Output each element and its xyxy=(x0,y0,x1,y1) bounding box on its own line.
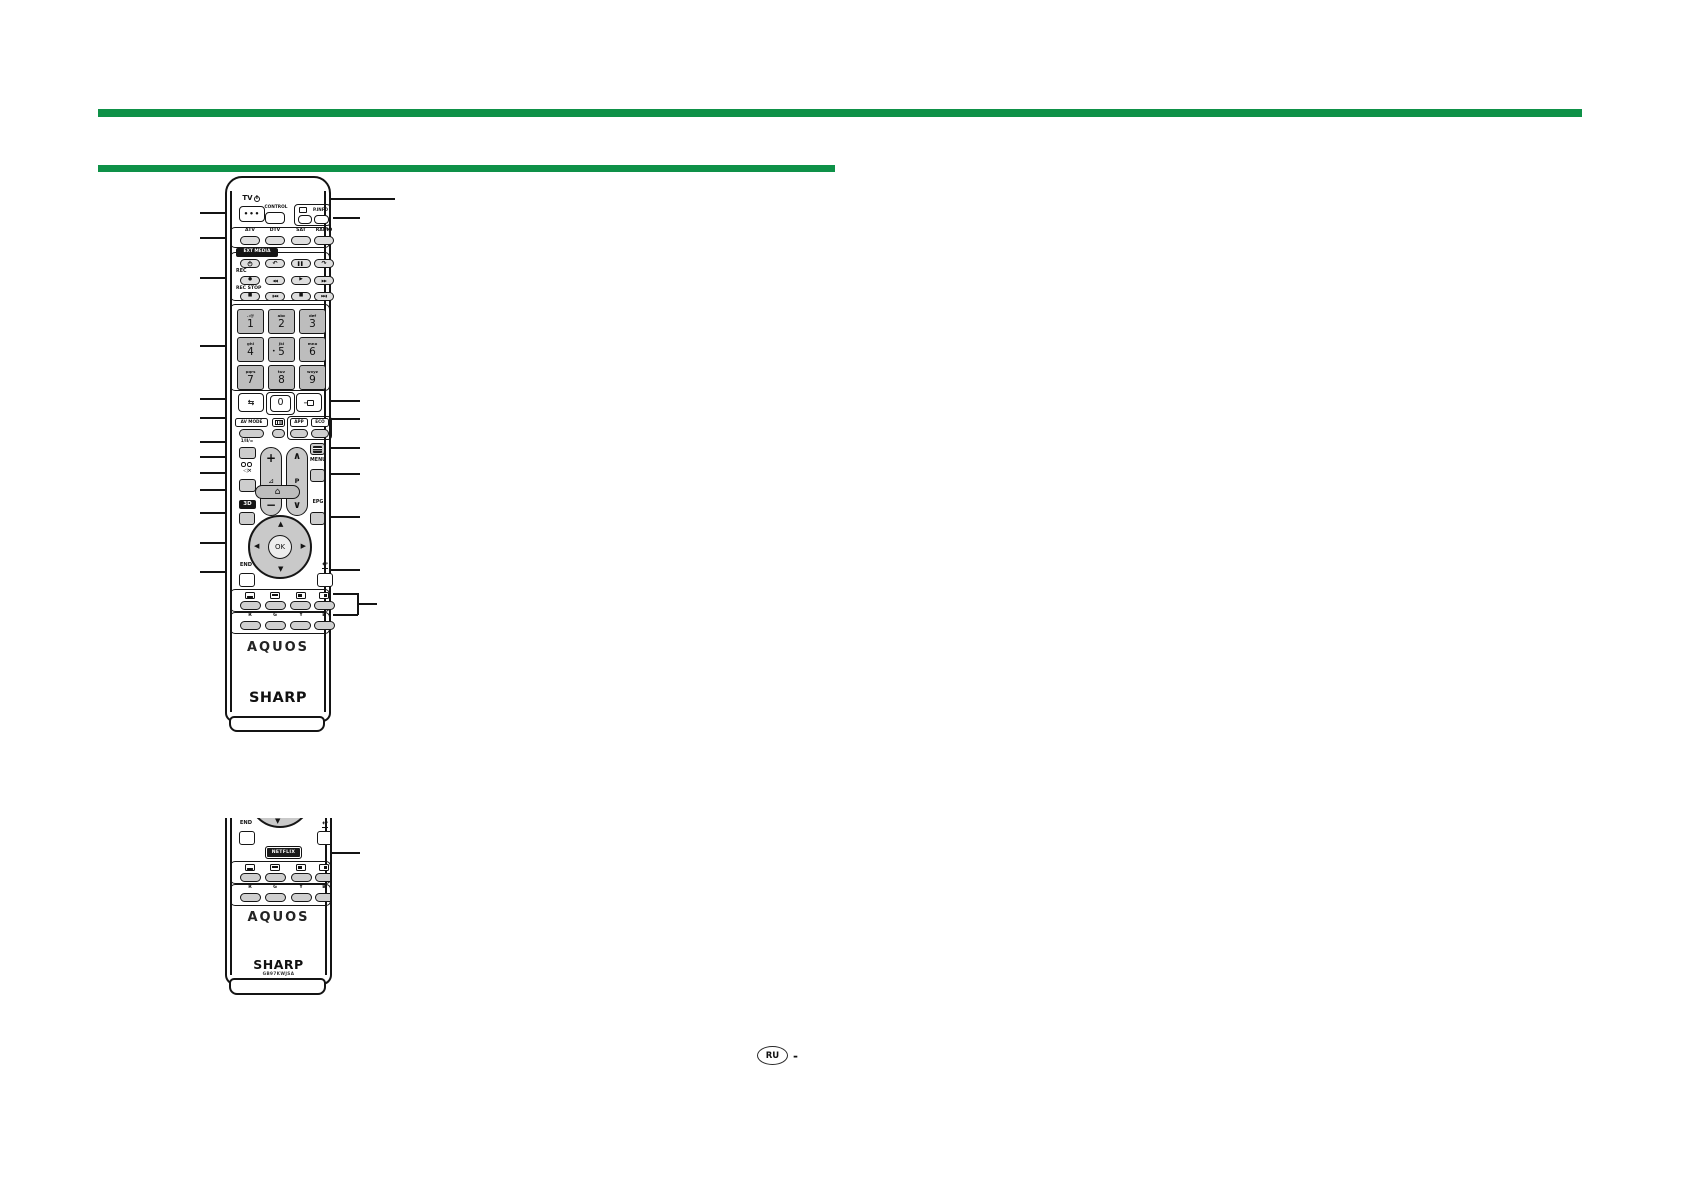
power-icon xyxy=(248,261,253,266)
remote-body: ▼ END ↩ NETFLIX R G Y B xyxy=(225,818,332,985)
remote-bottom-cap xyxy=(229,978,326,995)
epg-label: EPG xyxy=(309,501,327,506)
home-button: ⌂ xyxy=(255,485,300,499)
nav-down-icon: ▼ xyxy=(275,818,280,825)
dtv-button xyxy=(265,236,285,245)
teletext-subpage-icon xyxy=(319,864,329,871)
stop-icon: ■ xyxy=(248,294,252,299)
teletext-reveal-icon xyxy=(296,592,306,599)
netflix-label: NETFLIX xyxy=(272,850,296,855)
green-button xyxy=(265,621,286,630)
flashback-icon: ⇆ xyxy=(248,398,255,407)
volume-down: − xyxy=(266,499,276,511)
source-label-sat: SAT xyxy=(289,229,313,234)
media-pause-button: ▌▌ xyxy=(291,259,311,268)
callout-line xyxy=(357,603,377,605)
rec-label: REC xyxy=(236,270,256,275)
source-label-dtv: DTV xyxy=(263,229,287,234)
channel-label: P xyxy=(295,478,300,485)
navigation-pad: ▲ ▼ ◀ ▶ OK xyxy=(248,515,312,579)
pinfo-label: P.INFO xyxy=(311,208,330,212)
channel-rocker: ∧ P ∨ xyxy=(286,447,308,516)
section-underline xyxy=(98,165,835,172)
rewind-icon: ◀◀ xyxy=(273,279,278,283)
remote-body: TV ••• CONTROL P.INFO ATV DTV SAT RADIO xyxy=(225,176,331,722)
digit-key-0: 0 xyxy=(270,395,291,412)
atv-button xyxy=(240,236,260,245)
ok-label: OK xyxy=(275,544,285,551)
display-mode-button xyxy=(298,215,312,224)
input-box-icon xyxy=(307,400,314,406)
source-label-atv: ATV xyxy=(238,229,262,234)
red-key-label: R xyxy=(243,886,257,891)
digit-key-6: mno6 xyxy=(299,337,326,362)
key-digit: 3 xyxy=(309,319,316,330)
record-icon: ● xyxy=(248,278,252,283)
teletext-reveal-button xyxy=(291,873,312,882)
sat-button xyxy=(291,236,311,245)
volume-up: + xyxy=(266,452,276,464)
remote-diagram-partial: ▼ END ↩ NETFLIX R G Y B xyxy=(225,818,332,997)
skip-forward-icon: ▶▶▮ xyxy=(321,295,327,298)
teletext-top-icon xyxy=(270,592,280,599)
return-button xyxy=(317,831,332,845)
fast-forward-button: ▶▶ xyxy=(314,276,334,285)
subtitle-button xyxy=(240,873,261,882)
page-footer-mark: RU - xyxy=(757,1046,798,1065)
tactile-dot: • xyxy=(272,349,276,355)
key-digit: 4 xyxy=(247,347,254,358)
control-button xyxy=(265,212,285,224)
rec-button: ● xyxy=(240,276,260,285)
pause-icon: ▌▌ xyxy=(298,262,304,266)
stop-button-2: ■ xyxy=(291,292,311,301)
home-icon: ⌂ xyxy=(275,488,281,497)
teletext-top-button xyxy=(265,601,286,610)
yellow-button xyxy=(290,621,311,630)
play-icon: ▶ xyxy=(299,278,303,283)
pinfo-button xyxy=(314,215,329,224)
teletext-reveal-icon xyxy=(296,864,306,871)
ext-media-tag: EXT MEDIA xyxy=(236,248,278,257)
end-button xyxy=(239,831,255,845)
end-label: END xyxy=(237,821,255,826)
footer-dash: - xyxy=(793,1049,798,1063)
key-digit: 9 xyxy=(309,375,316,386)
channel-up: ∧ xyxy=(293,452,301,462)
digit-key-8: tuv8 xyxy=(268,365,295,390)
three-d-button xyxy=(239,512,255,525)
teletext-subpage-button xyxy=(315,873,332,882)
digit-key-9: wxyz9 xyxy=(299,365,326,390)
tv-label: TV xyxy=(242,195,252,202)
callout-line xyxy=(331,569,360,571)
av-mode-button xyxy=(239,429,264,438)
channel-down: ∨ xyxy=(293,501,301,511)
key-digit: 1 xyxy=(247,319,254,330)
region-code-badge: RU xyxy=(757,1046,788,1065)
return-icon: ↩ xyxy=(317,561,333,568)
digit-key-3: def3 xyxy=(299,309,326,334)
menu-label: MENU xyxy=(307,459,329,464)
fast-forward-icon: ▶▶ xyxy=(322,279,327,283)
callout-line xyxy=(333,217,360,219)
end-button xyxy=(239,573,255,587)
screen-stripes-label xyxy=(272,418,285,427)
aquos-brand: AQUOS xyxy=(227,640,329,655)
remote-diagram-full: TV ••• CONTROL P.INFO ATV DTV SAT RADIO xyxy=(225,176,331,733)
mute-button xyxy=(239,479,256,492)
blue-button xyxy=(314,621,335,630)
teletext-subpage-button xyxy=(314,601,335,610)
rewind-button: ◀◀ xyxy=(265,276,285,285)
digit-key-7: pqrs7 xyxy=(237,365,264,390)
sharp-logo: SHARP xyxy=(227,957,330,972)
teletext-top-icon xyxy=(270,864,280,871)
play-button: ▶ xyxy=(291,276,311,285)
model-code: GB97KWJSA xyxy=(227,971,330,976)
teletext-reveal-button xyxy=(290,601,311,610)
key-digit: 7 xyxy=(247,375,254,386)
av-mode-label: AV MODE xyxy=(235,418,268,427)
key-digit: 2 xyxy=(278,319,285,330)
section-bar-top xyxy=(98,109,1582,117)
stop-button: ■ xyxy=(240,292,260,301)
yellow-key-label: Y xyxy=(294,886,308,891)
app-button xyxy=(290,429,308,438)
epg-button xyxy=(310,512,325,525)
text-page-button xyxy=(310,443,325,455)
key-digit: 5 xyxy=(278,347,285,358)
red-key-label: R xyxy=(243,614,257,619)
skip-icon: ↷ xyxy=(321,261,326,267)
menu-button xyxy=(310,469,325,482)
blue-key-label: B xyxy=(317,614,331,619)
callout-line xyxy=(331,418,360,420)
rec-stop-label: REC STOP xyxy=(236,287,262,292)
power-icon xyxy=(254,196,260,202)
remote-bottom-cap xyxy=(229,716,325,732)
subtitle-icon xyxy=(245,864,255,871)
callout-line xyxy=(333,614,358,616)
green-button xyxy=(265,893,286,902)
media-replay-button: ↶ xyxy=(265,259,285,268)
key-digit: 8 xyxy=(278,375,285,386)
teletext-subpage-icon xyxy=(319,592,329,599)
nav-right-icon: ▶ xyxy=(301,543,306,550)
aquos-brand: AQUOS xyxy=(227,910,330,925)
blue-key-label: B xyxy=(317,886,331,891)
volume-rocker: + ⊿ − xyxy=(260,447,282,516)
skip-forward-button: ▶▶▮ xyxy=(314,292,334,301)
subtitle-button xyxy=(240,601,261,610)
digit-key-1: .:@1 xyxy=(237,309,264,334)
sharp-logo: SHARP xyxy=(227,690,329,706)
text-page-icon xyxy=(313,446,322,453)
screen-stripes-button xyxy=(272,429,285,438)
stop-icon: ■ xyxy=(299,294,303,299)
audio-output-icon xyxy=(241,462,252,467)
eco-button xyxy=(311,429,329,438)
app-label: APP xyxy=(290,418,308,427)
green-key-label: G xyxy=(268,614,282,619)
green-key-label: G xyxy=(268,886,282,891)
replay-icon: ↶ xyxy=(272,261,277,267)
skip-back-button: ▮◀◀ xyxy=(265,292,285,301)
return-button xyxy=(317,573,333,587)
red-button xyxy=(240,621,261,630)
display-mode-icon xyxy=(299,207,307,213)
subtitle-icon xyxy=(245,592,255,599)
audio-select-label: 1/II/= xyxy=(234,439,260,443)
blue-button xyxy=(315,893,332,902)
audio-select-button xyxy=(239,447,256,459)
nav-down-icon: ▼ xyxy=(278,566,283,573)
source-label-radio: RADIO xyxy=(312,229,336,234)
yellow-key-label: Y xyxy=(294,614,308,619)
power-dots: ••• xyxy=(244,211,260,218)
control-label: CONTROL xyxy=(262,206,290,210)
digit-key-2: abc2 xyxy=(268,309,295,334)
volume-icon: ⊿ xyxy=(268,478,274,485)
manual-page: TV ••• CONTROL P.INFO ATV DTV SAT RADIO xyxy=(0,0,1684,1191)
key-digit: 6 xyxy=(309,347,316,358)
skip-back-icon: ▮◀◀ xyxy=(272,295,278,298)
return-arrow: ↩ xyxy=(322,819,328,828)
ok-button: OK xyxy=(268,535,292,559)
eco-label: ECO xyxy=(311,418,329,427)
return-arrow: ↩ xyxy=(322,560,328,569)
yellow-button xyxy=(291,893,312,902)
callout-line xyxy=(333,593,358,595)
digit-key-4: ghi4 xyxy=(237,337,264,362)
flashback-button: ⇆ xyxy=(238,393,264,412)
end-label: END xyxy=(237,563,255,568)
netflix-button: NETFLIX xyxy=(265,846,302,859)
media-power-button xyxy=(240,259,260,268)
nav-left-icon: ◀ xyxy=(254,543,259,550)
mute-icon: ◁× xyxy=(239,469,256,475)
return-icon: ↩ xyxy=(317,820,332,827)
radio-button xyxy=(314,236,334,245)
screen-stripes-icon xyxy=(275,420,283,426)
media-skip-button: ↷ xyxy=(314,259,334,268)
three-d-label: 3D xyxy=(239,500,256,509)
key-digit: 0 xyxy=(277,398,283,409)
digit-key-5: •jkl5 xyxy=(268,337,295,362)
tv-power-label: TV xyxy=(239,195,263,202)
input-source-button: → xyxy=(296,393,322,412)
teletext-top-button xyxy=(265,873,286,882)
nav-up-icon: ▲ xyxy=(278,521,283,528)
red-button xyxy=(240,893,261,902)
callout-line xyxy=(200,237,228,239)
